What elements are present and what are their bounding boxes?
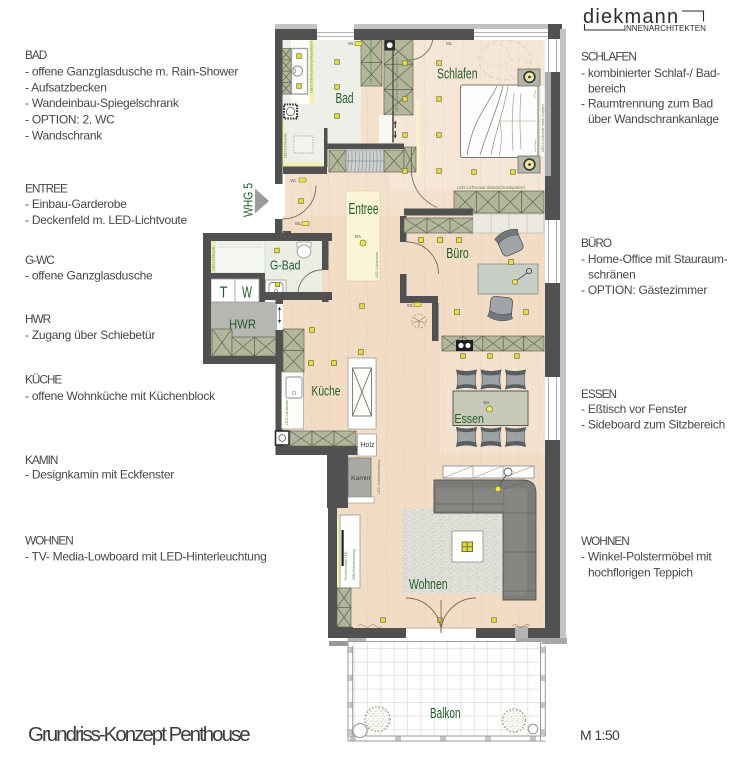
svg-text:- Home-Office mit Stauraum-: - Home-Office mit Stauraum- — [581, 252, 728, 266]
svg-text:- Aufsatzbecken: - Aufsatzbecken — [25, 80, 107, 94]
svg-text:hochflorigen Teppich: hochflorigen Teppich — [588, 565, 693, 579]
svg-text:T: T — [220, 285, 228, 302]
svg-text:BÜRO: BÜRO — [581, 236, 612, 250]
svg-text:HWR: HWR — [229, 317, 256, 331]
svg-text:- offene Ganzglasdusche: - offene Ganzglasdusche — [25, 269, 153, 283]
svg-text:LED-Unterleuchtung Waschtisch: LED-Unterleuchtung Waschtisch — [310, 41, 314, 93]
svg-text:- Eßtisch vor Fenster: - Eßtisch vor Fenster — [581, 402, 687, 416]
svg-text:- Raumtrennung zum Bad: - Raumtrennung zum Bad — [581, 97, 713, 111]
svg-text:ENTREE: ENTREE — [25, 181, 68, 195]
svg-text:Balkon: Balkon — [430, 706, 461, 722]
svg-text:WL: WL — [295, 221, 302, 226]
svg-text:LED-Hinterleuchtung: LED-Hinterleuchtung — [352, 549, 356, 580]
svg-text:KAMIN: KAMIN — [25, 453, 58, 467]
svg-text:- Wandeinbau-Spiegelschrank: - Wandeinbau-Spiegelschrank — [25, 96, 180, 110]
svg-text:G-WC: G-WC — [25, 253, 55, 267]
svg-text:WL: WL — [348, 41, 355, 46]
svg-text:W: W — [242, 285, 253, 302]
svg-text:- Deckenfeld m. LED-Lichtvoute: - Deckenfeld m. LED-Lichtvoute — [25, 213, 187, 227]
svg-text:HWR: HWR — [25, 312, 51, 326]
svg-text:- Wandschrank: - Wandschrank — [25, 129, 103, 143]
svg-text:WL: WL — [291, 178, 298, 183]
svg-text:LED-Lichtvoute Wandschrankpane: LED-Lichtvoute Wandschrankpaneel — [395, 57, 399, 112]
svg-text:- Winkel-Polstermöbel mit: - Winkel-Polstermöbel mit — [581, 550, 712, 564]
svg-text:Bad: Bad — [336, 91, 354, 107]
svg-text:G-Bad: G-Bad — [270, 259, 301, 273]
svg-text:ESSEN: ESSEN — [581, 387, 616, 401]
svg-text:LED-Unterleuchtung: LED-Unterleuchtung — [377, 460, 381, 494]
svg-text:- OPTION: 2. WC: - OPTION: 2. WC — [25, 112, 115, 126]
svg-text:- TV- Media-Lowboard mit LED-H: - TV- Media-Lowboard mit LED-Hinterleuch… — [25, 549, 267, 563]
svg-text:LED-Lichtvoute: LED-Lichtvoute — [284, 133, 288, 158]
svg-text:Kamin: Kamin — [351, 475, 370, 482]
svg-text:- Einbau-Garderobe: - Einbau-Garderobe — [25, 197, 127, 211]
svg-text:- kombinierter Schlaf-/ Bad-: - kombinierter Schlaf-/ Bad- — [581, 66, 720, 80]
svg-text:- Designkamin mit Eckfenster: - Designkamin mit Eckfenster — [25, 468, 174, 482]
svg-text:WHG 5: WHG 5 — [242, 183, 256, 217]
svg-text:SCHLAFEN: SCHLAFEN — [581, 50, 636, 64]
svg-text:- offene Ganzglasdusche m. Rai: - offene Ganzglasdusche m. Rain-Shower — [25, 65, 238, 79]
svg-text:Essen: Essen — [454, 411, 484, 426]
svg-text:- Sideboard zum Sitzbereich: - Sideboard zum Sitzbereich — [581, 418, 725, 432]
svg-text:Fernsehmöbel LED: Fernsehmöbel LED — [344, 551, 348, 580]
svg-text:Entree: Entree — [349, 201, 379, 218]
svg-text:KÜCHE: KÜCHE — [25, 372, 62, 386]
svg-text:LED-Lichtvoute hinter Kopfteil: LED-Lichtvoute hinter Kopfteil — [541, 104, 545, 152]
svg-text:WOHNEN: WOHNEN — [581, 534, 629, 548]
svg-text:INNENARCHITEKTEN: INNENARCHITEKTEN — [624, 24, 706, 33]
svg-text:WL: WL — [446, 41, 453, 46]
svg-text:Küche: Küche — [312, 383, 341, 399]
svg-text:BAD: BAD — [25, 48, 47, 62]
svg-text:Grundriss-Konzept Penthouse: Grundriss-Konzept Penthouse — [28, 723, 250, 746]
svg-text:Wohnen: Wohnen — [409, 576, 448, 593]
svg-text:LED-Lichtvoute Wandschrankpane: LED-Lichtvoute Wandschrankpaneel — [457, 185, 525, 190]
svg-text:schränen: schränen — [588, 268, 635, 282]
svg-text:- offene Wohnküche mit Küchenb: - offene Wohnküche mit Küchenblock — [25, 389, 216, 403]
svg-text:WL: WL — [407, 303, 414, 308]
svg-text:Holz: Holz — [361, 442, 376, 449]
svg-text:- Zugang über Schiebetür: - Zugang über Schiebetür — [25, 328, 155, 342]
svg-text:Schlafen: Schlafen — [437, 66, 478, 83]
svg-text:DA: DA — [355, 234, 361, 239]
svg-text:LED-Lichtleiste: LED-Lichtleiste — [285, 399, 289, 425]
svg-text:Büro: Büro — [446, 246, 469, 262]
svg-text:über Wandschrankanlage: über Wandschrankanlage — [588, 112, 719, 126]
svg-text:DA: DA — [484, 400, 490, 405]
svg-text:LED-Lichtvoute: LED-Lichtvoute — [375, 252, 379, 278]
svg-text:- OPTION: Gästezimmer: - OPTION: Gästezimmer — [581, 283, 707, 297]
svg-text:WOHNEN: WOHNEN — [25, 534, 73, 548]
svg-text:M 1:50: M 1:50 — [580, 727, 620, 743]
svg-text:bereich: bereich — [588, 81, 626, 95]
